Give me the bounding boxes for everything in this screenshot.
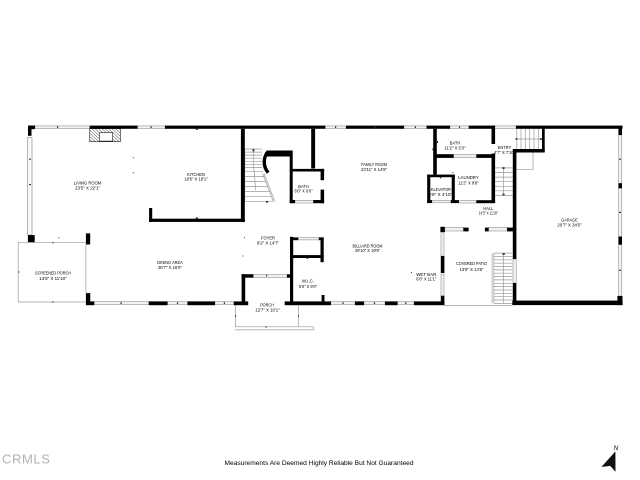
svg-text:6'0" X 9'0": 6'0" X 9'0" [299, 284, 318, 289]
svg-text:23'5" X 22'1": 23'5" X 22'1" [75, 186, 101, 191]
svg-text:29'10" X 19'9": 29'10" X 19'9" [355, 248, 381, 253]
svg-text:6'0" X 6'0": 6'0" X 6'0" [295, 189, 314, 194]
svg-text:14'3" X 11'10": 14'3" X 11'10" [479, 210, 499, 215]
svg-text:Measurements Are Deemed Highly: Measurements Are Deemed Highly Reliable … [225, 460, 415, 467]
svg-text:12'7" X 10'1": 12'7" X 10'1" [255, 307, 280, 312]
svg-text:9'2" X 14'7": 9'2" X 14'7" [257, 241, 280, 246]
svg-text:SCREENED PORCH: SCREENED PORCH [35, 271, 71, 276]
svg-text:COVERED PATIO: COVERED PATIO [456, 261, 487, 266]
svg-text:6'0" X 11'1": 6'0" X 11'1" [416, 277, 437, 282]
svg-text:11'2" X 8'8": 11'2" X 8'8" [458, 180, 479, 185]
svg-text:W.I.C.: W.I.C. [302, 279, 314, 284]
svg-text:13'8" X 11'10": 13'8" X 11'10" [39, 276, 67, 281]
svg-text:20'7" X 34'5": 20'7" X 34'5" [557, 222, 582, 227]
svg-text:CRMLS: CRMLS [2, 452, 51, 467]
svg-text:30'7" X 16'0": 30'7" X 16'0" [158, 265, 182, 270]
svg-text:4'8" X 4'10": 4'8" X 4'10" [429, 192, 453, 197]
svg-text:11'2" X 5'3": 11'2" X 5'3" [445, 145, 467, 150]
svg-text:23'11" X 14'8": 23'11" X 14'8" [361, 167, 388, 172]
svg-text:13'9" X 14'5": 13'9" X 14'5" [460, 267, 485, 272]
svg-text:N: N [614, 445, 619, 452]
svg-text:18'5" X 18'1": 18'5" X 18'1" [184, 176, 208, 181]
svg-text:4'7" X 7'10": 4'7" X 7'10" [494, 150, 516, 155]
